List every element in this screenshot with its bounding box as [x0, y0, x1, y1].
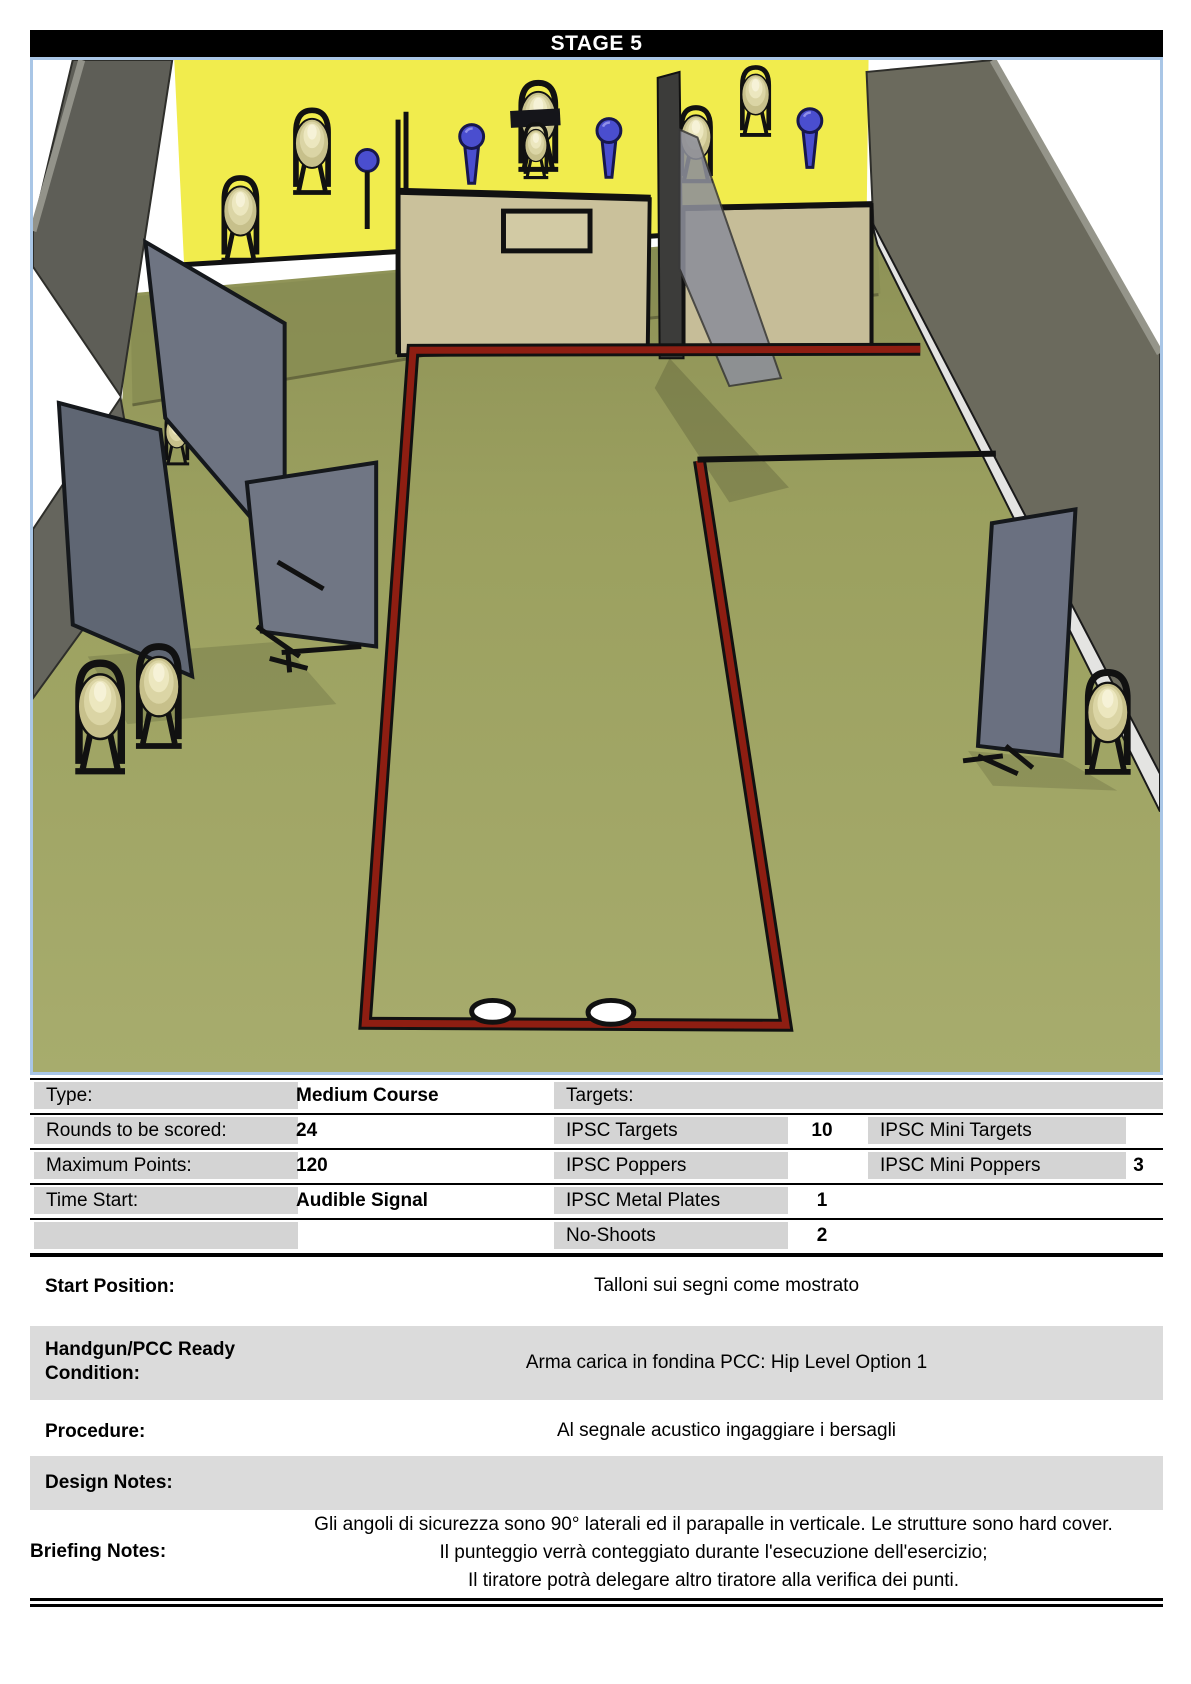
stage-briefing-page: STAGE 5 [0, 0, 1191, 1684]
stage-info-table: Type: Medium Course Targets: Rounds to b… [30, 1078, 1163, 1257]
ready-condition-section: Handgun/PCC Ready Condition: Arma carica… [30, 1326, 1163, 1400]
ready-condition-label: Handgun/PCC Ready Condition: [45, 1338, 280, 1386]
rounds-value: 24 [290, 1117, 556, 1144]
points-value: 120 [290, 1152, 556, 1179]
page-title: STAGE 5 [30, 30, 1163, 57]
barrier-panel [247, 463, 376, 647]
table-row: No-Shoots 2 [30, 1220, 1163, 1253]
wall-port [503, 211, 590, 251]
heel-mark-icon [472, 1000, 514, 1022]
start-position-label: Start Position: [45, 1275, 175, 1299]
poppers-label: IPSC Poppers [554, 1152, 788, 1179]
ready-condition-value: Arma carica in fondina PCC: Hip Level Op… [300, 1352, 1153, 1374]
heel-mark-icon [588, 1000, 634, 1024]
footer-rule-top [30, 1598, 1163, 1601]
footer-rule-bottom [30, 1604, 1163, 1607]
start-position-value: Talloni sui segni come mostrato [300, 1275, 1153, 1297]
timestart-value: Audible Signal [290, 1187, 556, 1214]
timestart-label: Time Start: [34, 1187, 298, 1214]
ipsc-targets-label: IPSC Targets [554, 1117, 788, 1144]
briefing-line: Gli angoli di sicurezza sono 90° lateral… [270, 1514, 1157, 1536]
stage-title-bar: STAGE 5 [30, 30, 1163, 57]
poppers-count [778, 1152, 866, 1179]
type-value: Medium Course [290, 1082, 556, 1109]
type-label: Type: [34, 1082, 298, 1109]
briefing-notes-label: Briefing Notes: [30, 1540, 166, 1564]
briefing-notes-section: Briefing Notes: Gli angoli di sicurezza … [30, 1512, 1163, 1596]
mini-targets-count [1116, 1117, 1161, 1144]
table-row: Time Start: Audible Signal IPSC Metal Pl… [30, 1185, 1163, 1220]
procedure-value: Al segnale acustico ingaggiare i bersagl… [300, 1420, 1153, 1442]
mini-targets-label: IPSC Mini Targets [868, 1117, 1126, 1144]
procedure-section: Procedure: Al segnale acustico ingaggiar… [30, 1410, 1163, 1454]
ipsc-targets-count: 10 [778, 1117, 866, 1144]
empty-label-cell [34, 1222, 298, 1249]
briefing-line: Il tiratore potrà delegare altro tirator… [270, 1570, 1157, 1592]
stage-diagram-frame [30, 57, 1163, 1075]
metal-plates-count: 1 [778, 1187, 866, 1214]
metal-plates-label: IPSC Metal Plates [554, 1187, 788, 1214]
start-position-section: Start Position: Talloni sui segni come m… [30, 1255, 1163, 1315]
no-shoots-count: 2 [778, 1222, 866, 1249]
design-notes-section: Design Notes: [30, 1456, 1163, 1510]
mini-poppers-count: 3 [1116, 1152, 1161, 1179]
mini-poppers-label: IPSC Mini Poppers [868, 1152, 1126, 1179]
table-row: Rounds to be scored: 24 IPSC Targets 10 … [30, 1115, 1163, 1150]
barrier-panel [978, 509, 1075, 756]
table-row: Maximum Points: 120 IPSC Poppers IPSC Mi… [30, 1150, 1163, 1185]
no-shoots-label: No-Shoots [554, 1222, 788, 1249]
rounds-label: Rounds to be scored: [34, 1117, 298, 1144]
procedure-label: Procedure: [45, 1420, 145, 1444]
briefing-line: Il punteggio verrà conteggiato durante l… [270, 1542, 1157, 1564]
stage-diagram [33, 60, 1160, 1072]
table-row: Type: Medium Course Targets: [30, 1080, 1163, 1115]
targets-header: Targets: [554, 1082, 1163, 1109]
design-notes-label: Design Notes: [45, 1471, 173, 1495]
points-label: Maximum Points: [34, 1152, 298, 1179]
plate-on-stick-icon [356, 149, 378, 171]
